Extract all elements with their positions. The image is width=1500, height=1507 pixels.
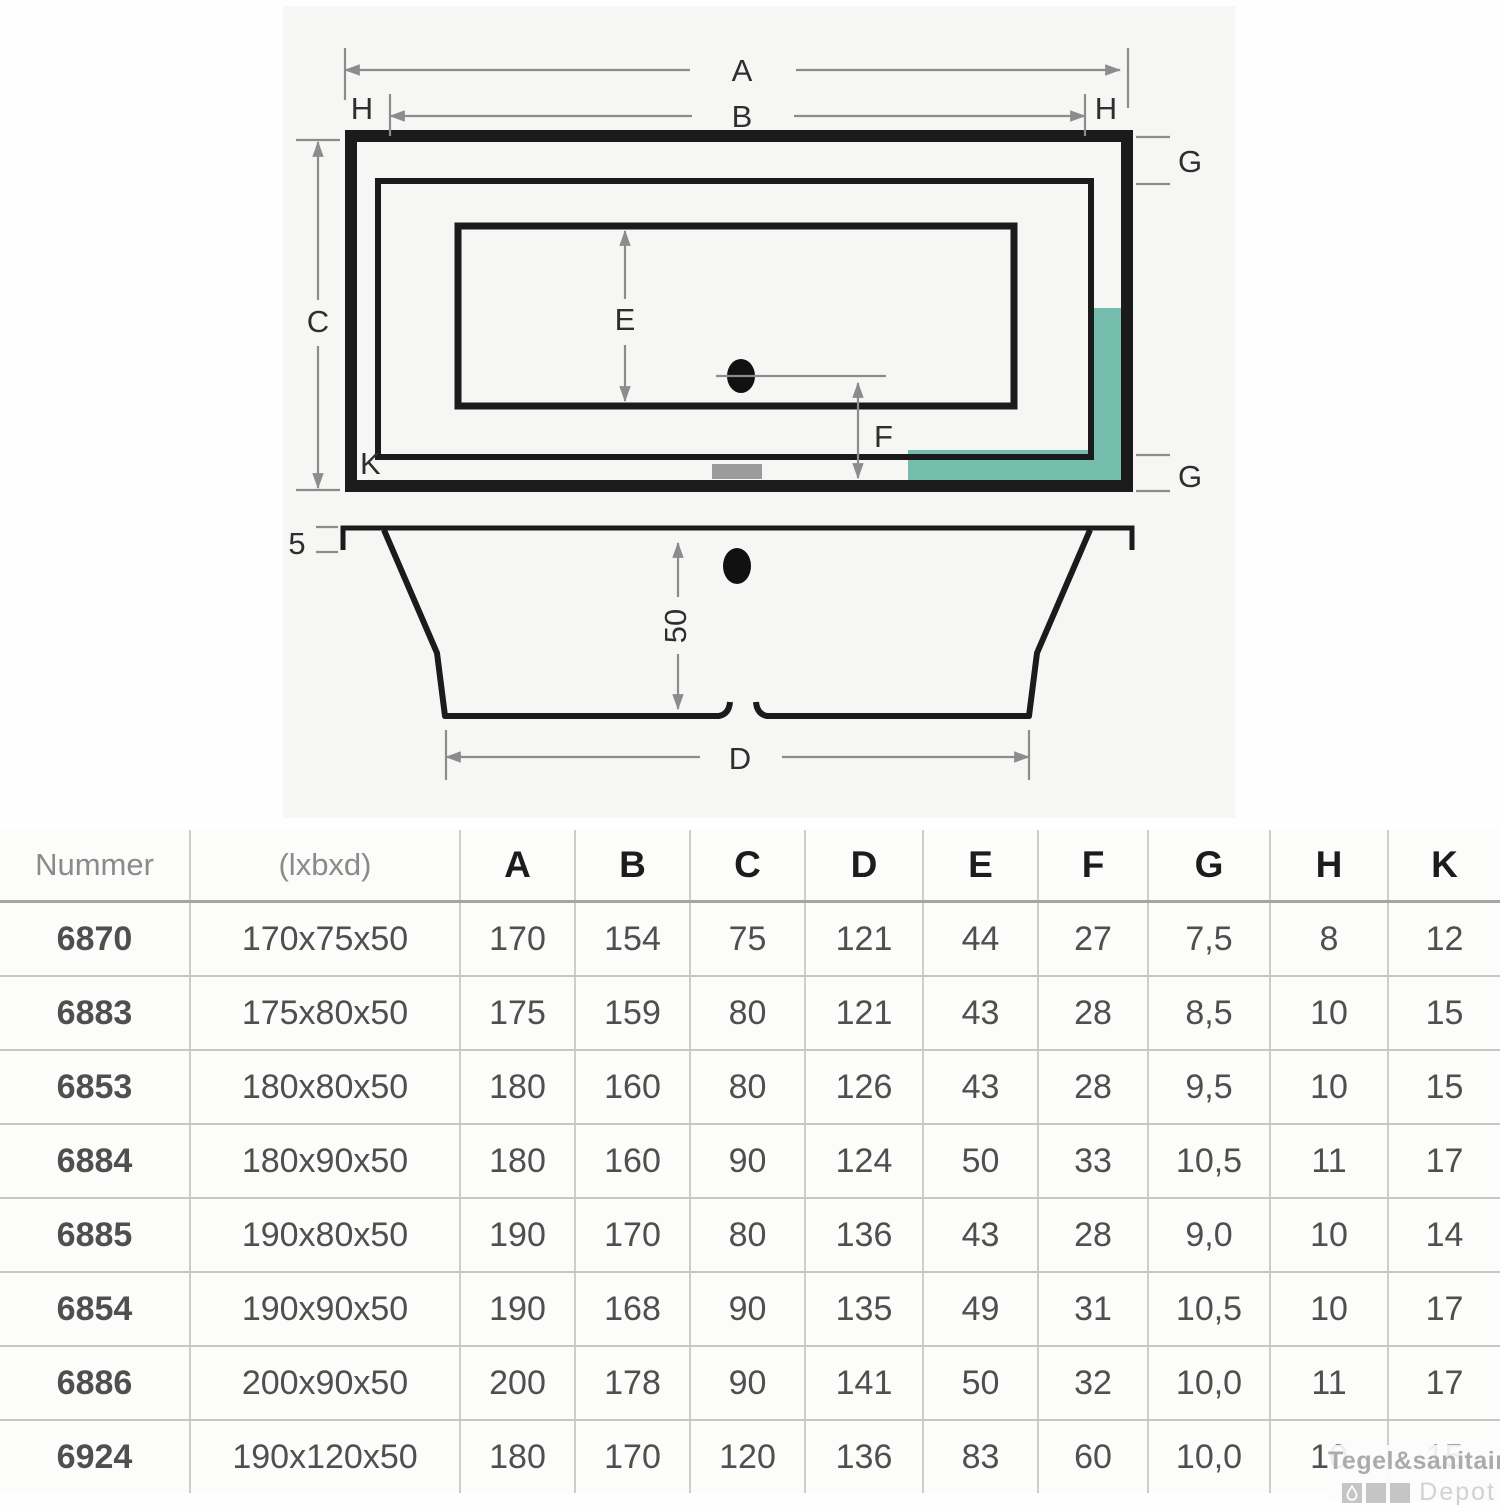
dim-label-g-bottom: G xyxy=(1178,459,1202,494)
spec-value-cell: 43 xyxy=(923,1198,1038,1272)
table-header-letter: H xyxy=(1270,830,1388,902)
spec-value-cell: 10,5 xyxy=(1148,1272,1270,1346)
spec-value-cell: 180 xyxy=(460,1124,575,1198)
dim-label-f: F xyxy=(874,419,893,454)
dim-label-k: K xyxy=(360,446,381,481)
dim-label-e: E xyxy=(615,302,636,337)
spec-value-cell: 90 xyxy=(690,1346,805,1420)
spec-value-cell: 43 xyxy=(923,976,1038,1050)
product-number-cell: 6886 xyxy=(0,1346,190,1420)
spec-value-cell: 200x90x50 xyxy=(190,1346,460,1420)
product-number-cell: 6885 xyxy=(0,1198,190,1272)
spec-value-cell: 170 xyxy=(575,1198,690,1272)
spec-value-cell: 44 xyxy=(923,902,1038,977)
spec-value-cell: 10,0 xyxy=(1148,1346,1270,1420)
dim-label-g-top: G xyxy=(1178,144,1202,179)
table-header-letter: A xyxy=(460,830,575,902)
side-view: 5 50 D xyxy=(288,526,1132,780)
spec-value-cell: 10 xyxy=(1270,1050,1388,1124)
spec-value-cell: 135 xyxy=(805,1272,923,1346)
spec-value-cell: 50 xyxy=(923,1346,1038,1420)
table-header-letter: E xyxy=(923,830,1038,902)
spec-value-cell: 43 xyxy=(923,1050,1038,1124)
dim-label-h-right: H xyxy=(1095,91,1117,126)
spec-value-cell: 9,5 xyxy=(1148,1050,1270,1124)
spec-value-cell: 50 xyxy=(923,1124,1038,1198)
spec-value-cell: 14 xyxy=(1388,1198,1500,1272)
spec-value-cell: 190 xyxy=(460,1198,575,1272)
dim-label-b: B xyxy=(732,99,753,134)
spec-value-cell: 178 xyxy=(575,1346,690,1420)
table-row: 6884180x90x5018016090124503310,51117 xyxy=(0,1124,1500,1198)
spec-value-cell: 15 xyxy=(1388,1050,1500,1124)
spec-value-cell: 180x80x50 xyxy=(190,1050,460,1124)
spec-value-cell: 136 xyxy=(805,1420,923,1493)
spec-value-cell: 10,5 xyxy=(1148,1124,1270,1198)
spec-value-cell: 180x90x50 xyxy=(190,1124,460,1198)
dimension-spec-table: Nummer(lxbxd)ABCDEFGHK 6870170x75x501701… xyxy=(0,830,1500,1493)
spec-value-cell: 12 xyxy=(1388,902,1500,977)
dim-label-c: C xyxy=(307,304,329,339)
dim-label-a: A xyxy=(732,53,753,88)
table-header-letter: F xyxy=(1038,830,1148,902)
spec-value-cell: 190 xyxy=(460,1272,575,1346)
spec-value-cell: 160 xyxy=(575,1050,690,1124)
spec-value-cell: 126 xyxy=(805,1050,923,1124)
spec-value-cell: 27 xyxy=(1038,902,1148,977)
spec-value-cell: 83 xyxy=(923,1420,1038,1493)
top-view: A B H H C E F G G K xyxy=(296,48,1202,494)
spec-value-cell: 190x80x50 xyxy=(190,1198,460,1272)
spec-value-cell: 60 xyxy=(1038,1420,1148,1493)
spec-value-cell: 28 xyxy=(1038,976,1148,1050)
table-row: 6853180x80x501801608012643289,51015 xyxy=(0,1050,1500,1124)
spec-value-cell: 75 xyxy=(690,902,805,977)
product-number-cell: 6853 xyxy=(0,1050,190,1124)
spec-value-cell: 170 xyxy=(575,1420,690,1493)
spec-value-cell: 154 xyxy=(575,902,690,977)
spec-value-cell: 9,0 xyxy=(1148,1198,1270,1272)
spec-value-cell: 28 xyxy=(1038,1050,1148,1124)
table-header-cell: (lxbxd) xyxy=(190,830,460,902)
table-row: 6883175x80x501751598012143288,51015 xyxy=(0,976,1500,1050)
spec-value-cell: 8 xyxy=(1270,902,1388,977)
tegel-sanitair-depot-logo: Tegel&sanitair Depot xyxy=(1328,1445,1500,1502)
drain-dot-side-view xyxy=(723,548,751,584)
spec-value-cell: 8,5 xyxy=(1148,976,1270,1050)
table-row: 6885190x80x501901708013643289,01014 xyxy=(0,1198,1500,1272)
spec-value-cell: 80 xyxy=(690,1198,805,1272)
spec-value-cell: 160 xyxy=(575,1124,690,1198)
spec-value-cell: 80 xyxy=(690,1050,805,1124)
spec-value-cell: 170x75x50 xyxy=(190,902,460,977)
spec-value-cell: 159 xyxy=(575,976,690,1050)
spec-value-cell: 120 xyxy=(690,1420,805,1493)
spec-value-cell: 90 xyxy=(690,1124,805,1198)
dim-label-h-left: H xyxy=(351,91,373,126)
spec-value-cell: 11 xyxy=(1270,1124,1388,1198)
table-header-letter: C xyxy=(690,830,805,902)
spec-value-cell: 200 xyxy=(460,1346,575,1420)
spec-value-cell: 10 xyxy=(1270,976,1388,1050)
table-header-letter: K xyxy=(1388,830,1500,902)
spec-value-cell: 33 xyxy=(1038,1124,1148,1198)
table-header-letter: G xyxy=(1148,830,1270,902)
spec-value-cell: 15 xyxy=(1388,976,1500,1050)
spec-value-cell: 180 xyxy=(460,1420,575,1493)
product-number-cell: 6870 xyxy=(0,902,190,977)
spec-value-cell: 32 xyxy=(1038,1346,1148,1420)
spec-value-cell: 90 xyxy=(690,1272,805,1346)
spec-value-cell: 10,0 xyxy=(1148,1420,1270,1493)
table-header-letter: B xyxy=(575,830,690,902)
dim-label-d: D xyxy=(729,741,751,776)
spec-value-cell: 49 xyxy=(923,1272,1038,1346)
rim-profile xyxy=(343,528,1132,550)
product-number-cell: 6924 xyxy=(0,1420,190,1493)
spec-sheet-page: { "diagram": { "top_view_labels": { "a":… xyxy=(0,0,1500,1500)
table-row: 6886200x90x5020017890141503210,01117 xyxy=(0,1346,1500,1420)
spec-value-cell: 141 xyxy=(805,1346,923,1420)
logo-depot-text: Depot xyxy=(1419,1478,1496,1507)
spec-value-cell: 10 xyxy=(1270,1198,1388,1272)
product-number-cell: 6854 xyxy=(0,1272,190,1346)
middle-rim-rect xyxy=(378,181,1091,457)
bathtub-technical-drawing: A B H H C E F G G K xyxy=(0,0,1500,820)
spec-value-cell: 17 xyxy=(1388,1346,1500,1420)
spec-value-cell: 168 xyxy=(575,1272,690,1346)
spec-value-cell: 190x90x50 xyxy=(190,1272,460,1346)
table-header-cell: Nummer xyxy=(0,830,190,902)
spec-value-cell: 11 xyxy=(1270,1346,1388,1420)
table-header-row: Nummer(lxbxd)ABCDEFGHK xyxy=(0,830,1500,902)
dim-label-depth: 50 xyxy=(658,609,693,643)
overflow-slot xyxy=(712,464,762,479)
spec-value-cell: 170 xyxy=(460,902,575,977)
table-row: 6854190x90x5019016890135493110,51017 xyxy=(0,1272,1500,1346)
tub-wall-right xyxy=(756,530,1090,716)
dim-label-rim-thickness: 5 xyxy=(288,526,305,561)
spec-value-cell: 175x80x50 xyxy=(190,976,460,1050)
table-header-letter: D xyxy=(805,830,923,902)
spec-value-cell: 121 xyxy=(805,976,923,1050)
logo-brand-text: Tegel&sanitair xyxy=(1328,1447,1500,1476)
table-row: 6870170x75x501701547512144277,5812 xyxy=(0,902,1500,977)
spec-value-cell: 180 xyxy=(460,1050,575,1124)
spec-table-body: 6870170x75x501701547512144277,5812688317… xyxy=(0,902,1500,1494)
table-row: 6924190x120x50180170120136836010,01015 xyxy=(0,1420,1500,1493)
spec-value-cell: 190x120x50 xyxy=(190,1420,460,1493)
spec-value-cell: 28 xyxy=(1038,1198,1148,1272)
spec-value-cell: 31 xyxy=(1038,1272,1148,1346)
spec-value-cell: 175 xyxy=(460,976,575,1050)
spec-value-cell: 121 xyxy=(805,902,923,977)
spec-value-cell: 7,5 xyxy=(1148,902,1270,977)
spec-value-cell: 124 xyxy=(805,1124,923,1198)
spec-value-cell: 136 xyxy=(805,1198,923,1272)
spec-value-cell: 17 xyxy=(1388,1124,1500,1198)
product-number-cell: 6883 xyxy=(0,976,190,1050)
spec-value-cell: 17 xyxy=(1388,1272,1500,1346)
spec-value-cell: 10 xyxy=(1270,1272,1388,1346)
product-number-cell: 6884 xyxy=(0,1124,190,1198)
spec-value-cell: 80 xyxy=(690,976,805,1050)
